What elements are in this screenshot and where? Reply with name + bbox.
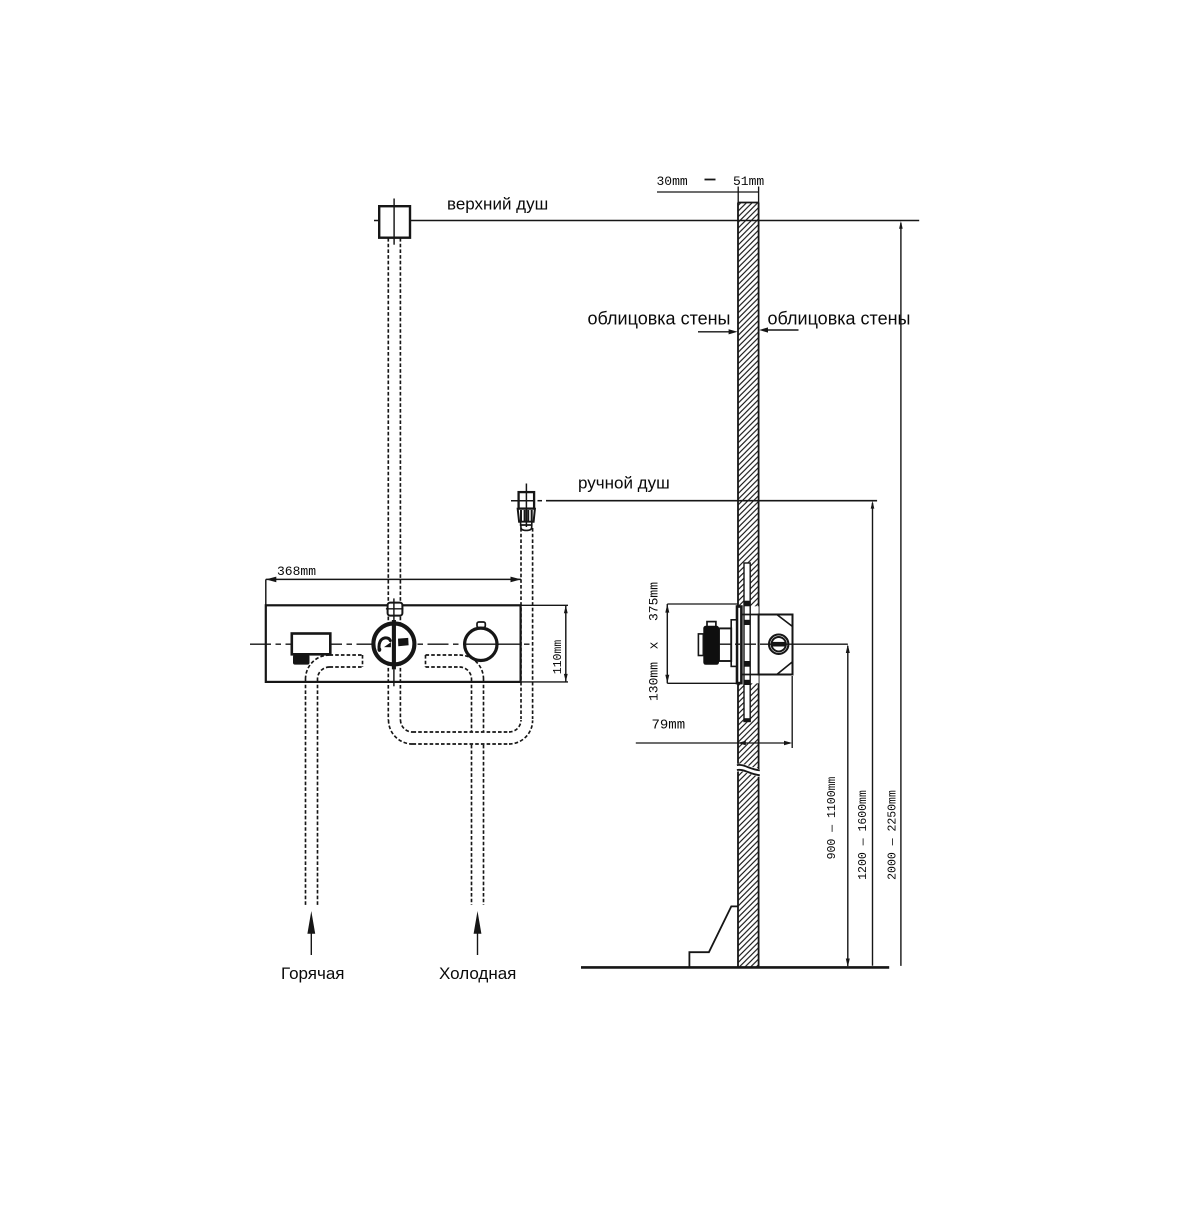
svg-text:30mm: 30mm bbox=[657, 174, 688, 189]
svg-text:ручной душ: ручной душ bbox=[578, 474, 670, 493]
svg-text:79mm: 79mm bbox=[652, 718, 686, 734]
svg-text:110mm: 110mm bbox=[552, 640, 565, 675]
svg-text:900 — 1100mm: 900 — 1100mm bbox=[826, 777, 839, 860]
svg-text:1200 — 1600mm: 1200 — 1600mm bbox=[857, 790, 870, 880]
svg-text:Холодная: Холодная bbox=[439, 964, 516, 983]
svg-text:Горячая: Горячая bbox=[281, 964, 345, 983]
svg-text:368mm: 368mm bbox=[277, 564, 316, 579]
svg-text:130mm: 130mm bbox=[647, 662, 662, 701]
svg-text:облицовка стены: облицовка стены bbox=[588, 309, 731, 329]
svg-text:облицовка стены: облицовка стены bbox=[768, 309, 911, 329]
svg-text:375mm: 375mm bbox=[647, 582, 662, 621]
svg-text:2000 — 2250mm: 2000 — 2250mm bbox=[887, 790, 900, 880]
svg-text:верхний душ: верхний душ bbox=[447, 195, 548, 214]
svg-text:x: x bbox=[647, 641, 662, 649]
